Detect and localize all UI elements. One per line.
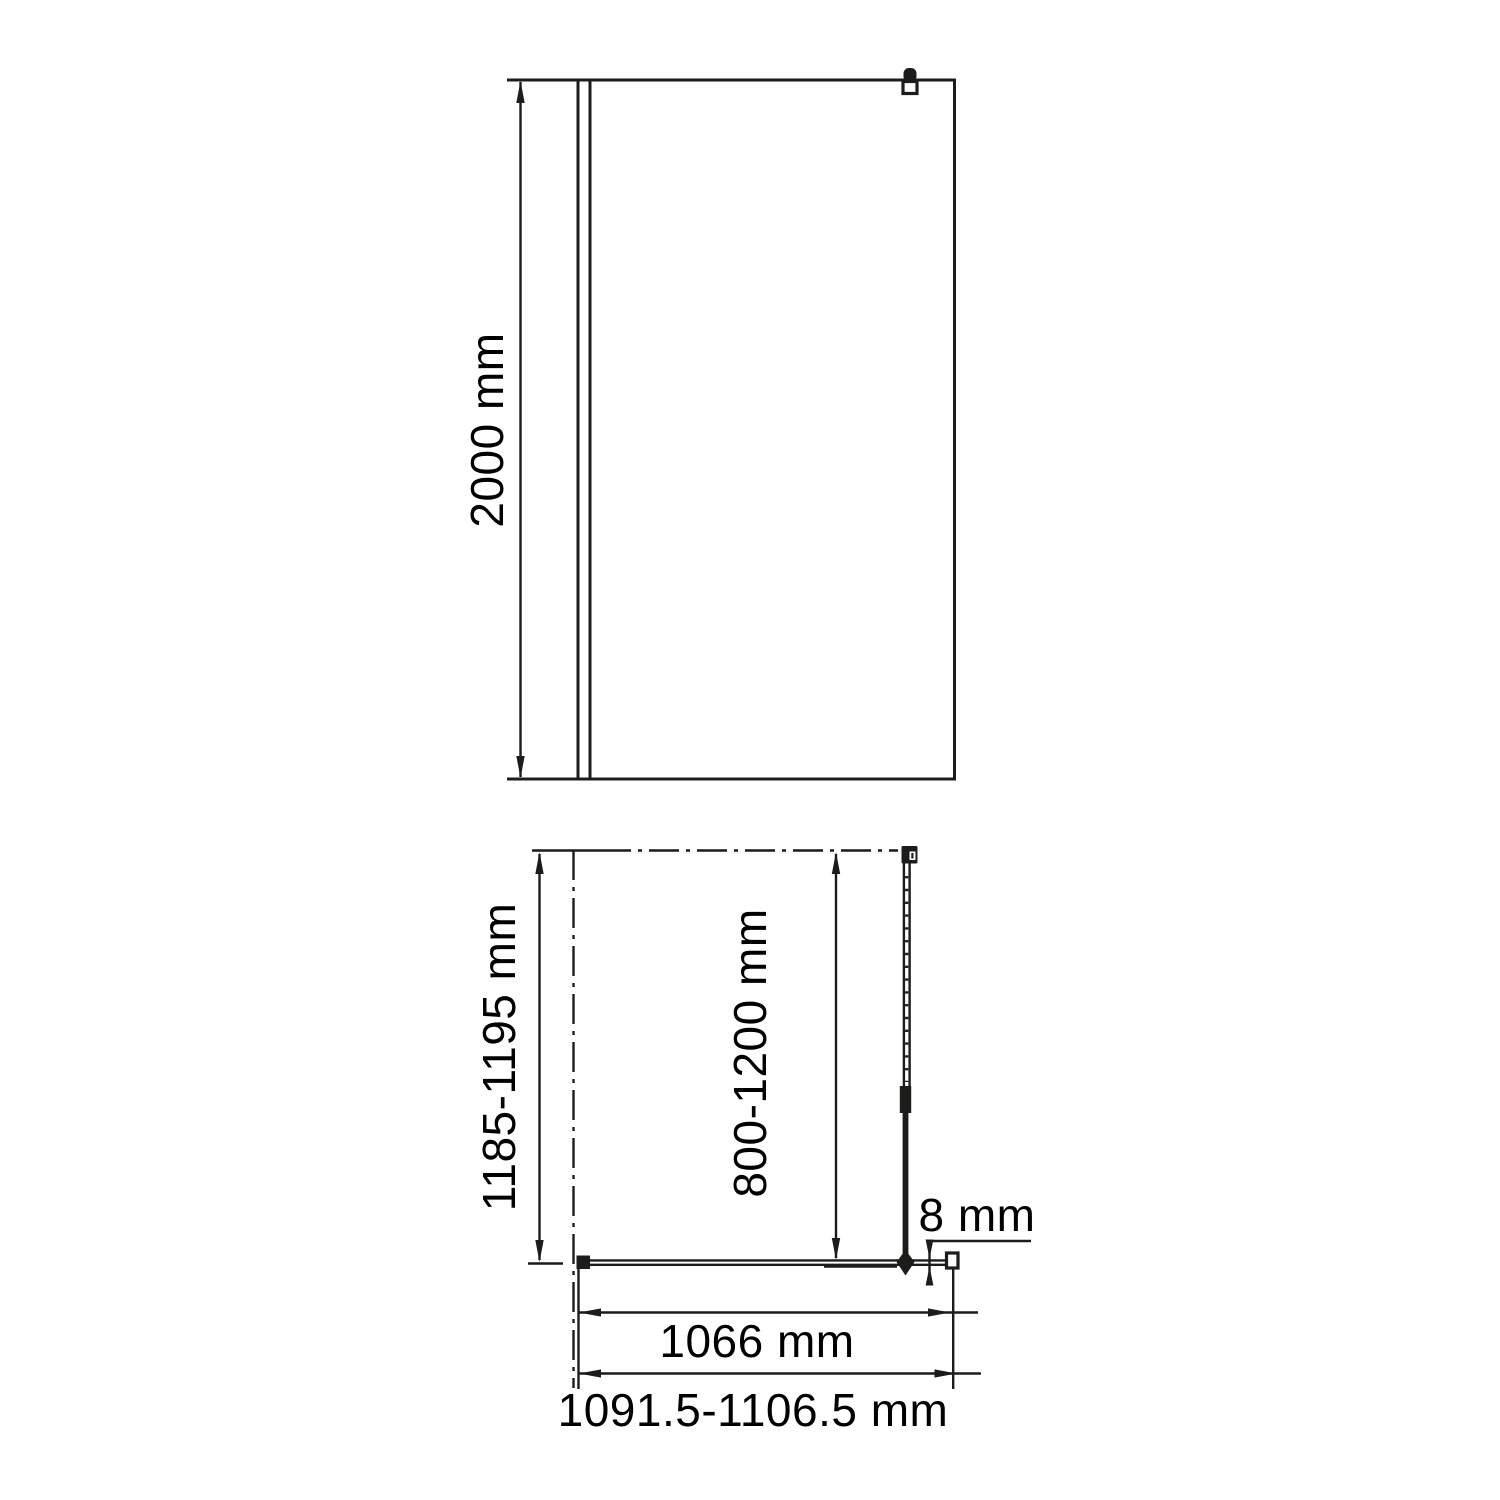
bar-glass-joint [897,1250,915,1276]
depth-dim-arrow-up [535,852,543,874]
end-profile-icon [947,1253,959,1268]
bracket-body [903,82,917,94]
install-width-dimension [578,1369,981,1377]
height-dimension [516,81,524,778]
depth-dimension [528,852,563,1264]
bar-length-arrow-up [832,852,840,874]
drawing-svg: 2000 mm 1185-1195 mm 800-1200 mm [0,0,1500,1500]
bar-length-dimension [824,852,897,1267]
depth-dim-arrow-down [535,1240,543,1262]
glass-width-arrow-left [579,1308,601,1316]
glass-width-label: 1066 mm [659,1315,854,1367]
height-dim-arrow-up [516,81,524,103]
glass-thickness-label: 8 mm [919,1189,1036,1241]
bar-clamp [900,1086,911,1113]
bar-rod [903,1113,909,1255]
thickness-arrow-up [926,1267,934,1286]
glass-thickness-dimension [926,1240,1031,1286]
plan-view: 1185-1195 mm 800-1200 mm [473,846,1036,1436]
wall-bracket-icon [903,68,917,94]
support-bar-plan [897,846,918,1276]
height-dim-arrow-down [516,756,524,778]
front-view: 2000 mm [461,68,956,779]
glass-width-arrow-right [928,1308,950,1316]
install-width-label: 1091.5-1106.5 mm [558,1384,949,1436]
technical-drawing-page: 2000 mm 1185-1195 mm 800-1200 mm [0,0,1500,1500]
wall-profile-section [577,1256,591,1270]
bar-length-dimension-label: 800-1200 mm [724,908,776,1197]
height-dimension-label: 2000 mm [461,332,513,527]
bar-length-arrow-down [832,1238,840,1260]
install-width-arrow-left [579,1369,601,1377]
thickness-arrow-down [926,1240,934,1259]
depth-dimension-label: 1185-1195 mm [473,903,525,1212]
bar-connector-pin [911,853,913,859]
